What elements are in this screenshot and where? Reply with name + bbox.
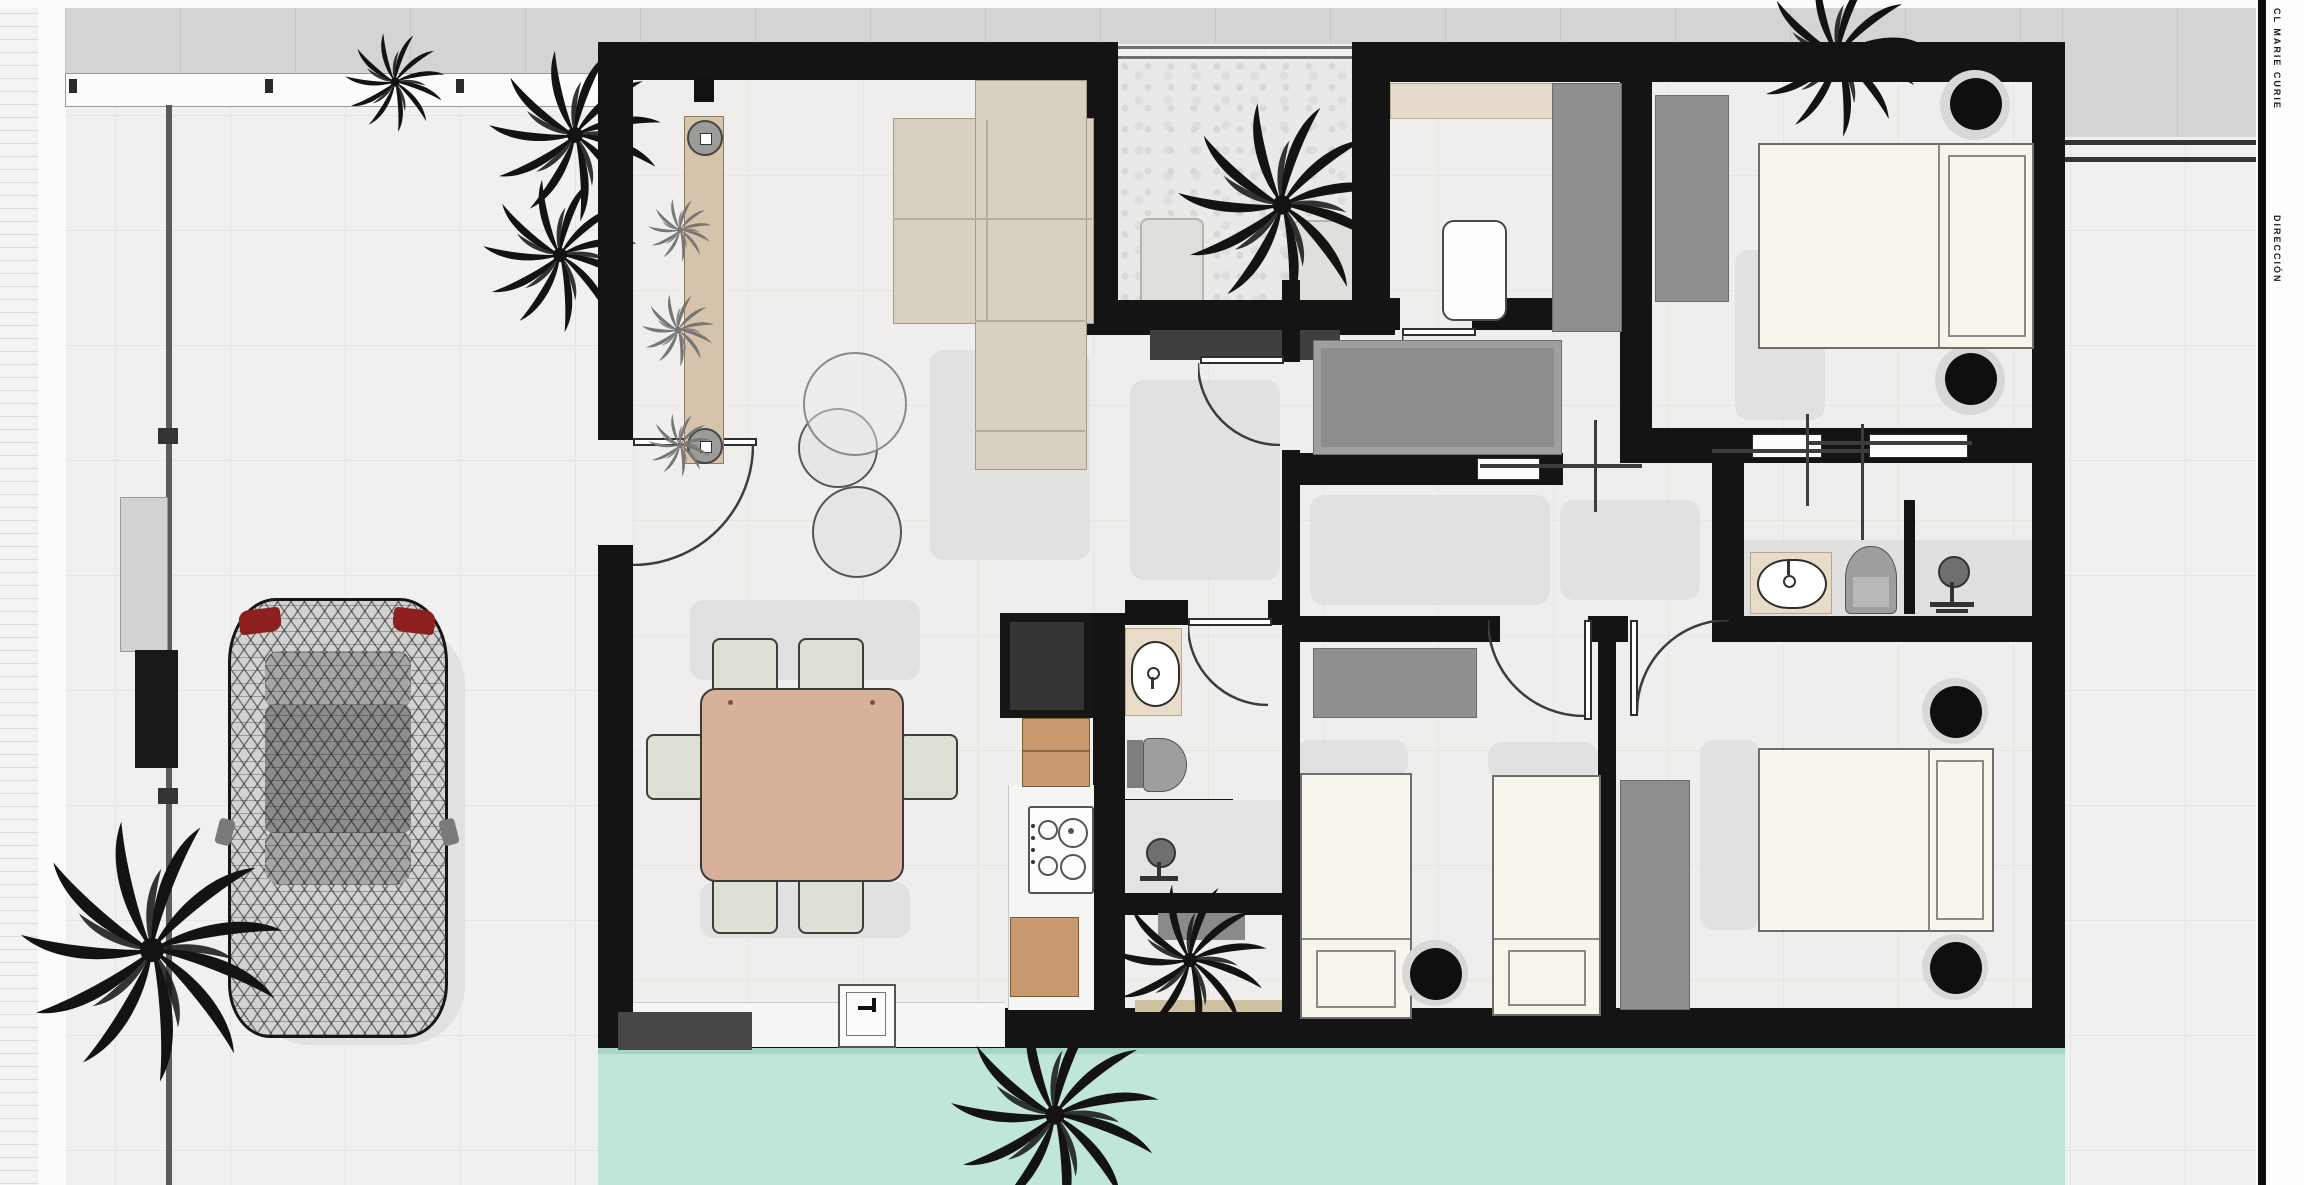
bed-seam: [1938, 145, 1940, 347]
agave-plant: [645, 195, 715, 265]
closet-interior: [1321, 348, 1554, 447]
wall-office-east: [1620, 82, 1652, 430]
wall-bath1-east: [1282, 616, 1300, 1010]
fridge-top: [1010, 622, 1084, 710]
dining-table: [700, 688, 904, 882]
wall-bath2-west: [1712, 463, 1744, 618]
swimming-pool: [598, 1048, 2065, 1185]
dining-chair: [646, 734, 706, 800]
burner: [1058, 818, 1088, 848]
bedroom1-pillow: [1948, 155, 2026, 337]
wall-west-lower: [598, 545, 633, 1048]
bed-seam: [1302, 938, 1410, 940]
master-side-table: [1930, 686, 1982, 738]
bath2-sliding-leaf: [1806, 441, 1972, 445]
bath2-shower-head: [1938, 556, 1970, 588]
toilet-seat: [1853, 577, 1889, 607]
sofa-seam: [975, 430, 1085, 432]
bath1-toilet-tank: [1127, 740, 1143, 788]
floor-plan-sheet: CL MARIE CURIE DIRECCIÓN: [0, 0, 2304, 1185]
fence-post: [456, 79, 464, 93]
bedroom1-side-table: [1945, 353, 1997, 405]
sofa-seam: [986, 120, 988, 320]
hob-knob: [1031, 848, 1035, 852]
bath2-sliding-slot: [1752, 434, 1822, 458]
hob-knob: [1031, 860, 1035, 864]
bedroom2-door-arc: [1488, 620, 1585, 717]
console-speaker: [687, 120, 723, 156]
burner: [1038, 820, 1058, 840]
bed-seam: [1928, 750, 1930, 930]
floor-shadow: [1560, 500, 1700, 600]
bed-seam: [1494, 938, 1599, 940]
cabinet-seam: [1023, 750, 1089, 752]
patio-glass-line: [1118, 46, 1390, 49]
gate: [120, 497, 168, 652]
rear-window: [265, 651, 411, 705]
palm-entry-lower: [475, 170, 645, 340]
master-pillow: [1936, 760, 1984, 920]
wall-bath1-north: [1125, 600, 1188, 625]
pendant-lamp: [803, 352, 907, 456]
wall-bedroom1-south: [1620, 428, 2032, 463]
dining-chair: [898, 734, 958, 800]
bath2-shower-base: [1930, 602, 1974, 607]
hob-knob: [1031, 824, 1035, 828]
closet-sliding-leaf: [1480, 464, 1642, 468]
boundary-post: [158, 788, 178, 804]
bedroom1-side-table: [1950, 78, 2002, 130]
bedroom2-wardrobe: [1313, 648, 1477, 718]
taillight-right: [392, 607, 437, 636]
burner: [1038, 856, 1058, 876]
gas-hob: [1028, 806, 1094, 894]
sheet-side-label-address: DIRECCIÓN: [2272, 215, 2282, 284]
palm-plant-bath: [1105, 875, 1275, 1045]
gate-post: [135, 650, 178, 768]
kitchen-cabinet: [1022, 718, 1090, 787]
fence-line: [2062, 157, 2258, 162]
patio-glass-line: [1118, 56, 1390, 59]
dining-chair: [712, 874, 778, 934]
wall-north-left: [615, 42, 1118, 80]
hob-knob: [1031, 836, 1035, 840]
bath2-shower-pole: [1950, 582, 1954, 604]
office-shelf: [1390, 83, 1554, 119]
palm-top-right: [1748, 0, 1928, 145]
master-side-table: [1930, 942, 1982, 994]
fence-line: [2062, 140, 2258, 145]
street-right: [2062, 8, 2256, 137]
floor-shadow: [1310, 495, 1550, 605]
office-table: [1442, 220, 1507, 321]
speaker-detail: [700, 133, 712, 145]
wall-bedrooms-north-c: [1712, 616, 2032, 642]
bath2-faucet: [1783, 575, 1796, 588]
bath2-shower-base: [1936, 609, 1968, 613]
agave-plant: [638, 290, 718, 370]
burner: [1060, 854, 1086, 880]
bed-shadow: [1700, 740, 1760, 930]
kitchen-cabinet-low: [1010, 917, 1079, 997]
wall-bedrooms-north-a: [1285, 616, 1500, 642]
bath1-faucet-stem: [1151, 677, 1154, 689]
sink-faucet: [872, 998, 876, 1012]
sink-basin: [846, 992, 886, 1036]
bath2-half-wall: [1904, 500, 1915, 614]
fence-post: [265, 79, 273, 93]
bath2-faucet-stem: [1787, 561, 1790, 575]
sheet-top-margin: [0, 0, 2304, 8]
table-detail: [728, 700, 733, 705]
sofa-chaise: [975, 80, 1087, 470]
title-block-border: [2258, 0, 2266, 1185]
sofa-seam: [975, 320, 1085, 322]
office-wardrobe: [1552, 83, 1622, 332]
bath1-door-arc: [1188, 625, 1269, 706]
bath2-vanity: [1750, 552, 1832, 614]
sliding-handle-mark: [1806, 414, 1809, 506]
hall-door-arc: [1198, 363, 1281, 446]
palm-patio: [1167, 90, 1397, 320]
closet-sliding-slot: [1477, 458, 1540, 480]
sofa-seam: [893, 218, 1092, 220]
bedroom2-pillow-left: [1316, 950, 1396, 1008]
kitchen-sink: [838, 984, 896, 1048]
sliding-handle-mark: [1594, 420, 1597, 512]
boundary-post: [158, 428, 178, 444]
palm-tree-large: [7, 805, 297, 1095]
pouf: [812, 486, 902, 578]
master-door-arc: [1637, 620, 1730, 713]
sheet-side-label-street: CL MARIE CURIE: [2272, 8, 2282, 110]
bedroom2-pillow-right: [1508, 950, 1586, 1006]
agave-plant: [645, 410, 715, 480]
bedroom1-wardrobe: [1655, 95, 1729, 302]
table-detail: [870, 700, 875, 705]
built-in-closet: [1313, 340, 1562, 455]
wall-bracket: [694, 78, 714, 102]
fence-post: [69, 79, 77, 93]
dining-chair: [798, 874, 864, 934]
fridge: [1000, 613, 1093, 718]
sliding-handle-mark: [1861, 424, 1864, 544]
bath2-sliding-slot: [1869, 434, 1968, 458]
bedroom2-door-leaf: [1584, 620, 1592, 720]
bedroom2-round-table: [1410, 948, 1462, 1000]
pool-edge: [598, 1048, 2065, 1054]
bath1-vanity: [1125, 628, 1182, 716]
bath2-toilet: [1845, 546, 1897, 614]
taillight-left: [238, 607, 283, 636]
master-wardrobe: [1620, 780, 1690, 1010]
bath1-shower-head: [1146, 838, 1176, 868]
wall-east: [2032, 42, 2065, 1012]
palm-small-top: [340, 27, 450, 137]
terrace-mat: [618, 1012, 752, 1050]
